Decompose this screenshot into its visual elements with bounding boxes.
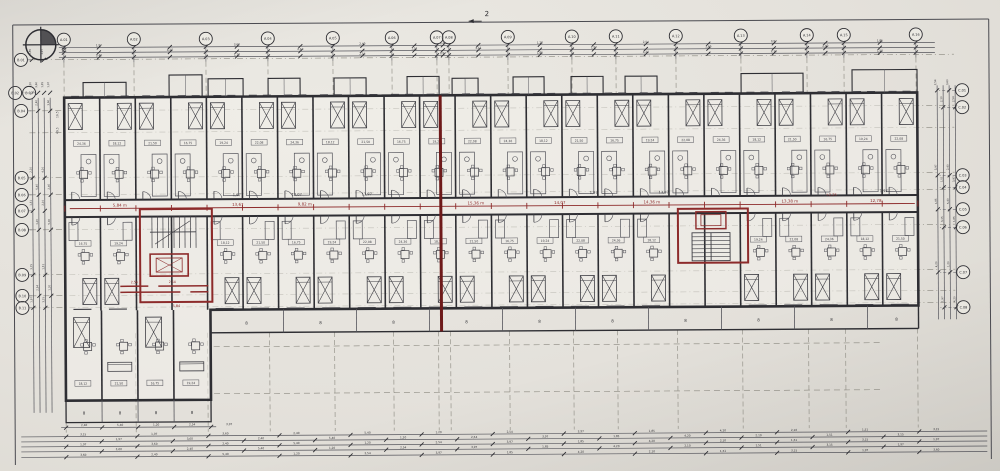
svg-text:3,15: 3,15 [862, 438, 868, 442]
svg-text:8: 8 [83, 411, 86, 416]
balcony [208, 79, 243, 97]
svg-text:A.10: A.10 [568, 35, 576, 39]
svg-text:14,07: 14,07 [554, 200, 566, 205]
svg-text:1,51: 1,51 [877, 48, 883, 52]
svg-text:2,54: 2,54 [400, 445, 406, 449]
svg-text:3,97: 3,97 [471, 445, 477, 449]
svg-text:22,08: 22,08 [363, 240, 372, 244]
svg-text:8: 8 [611, 318, 614, 323]
grid-bubble: A.08 [442, 31, 455, 44]
grid-bubble: B.04 [15, 104, 28, 117]
svg-text:5,40: 5,40 [96, 53, 102, 57]
svg-text:16,75: 16,75 [79, 242, 88, 246]
svg-text:3,15: 3,15 [897, 432, 903, 436]
left-dimension-chain: 1,854,202,101,513,151,973,602,405,401,20… [28, 48, 54, 412]
svg-text:B.06: B.06 [18, 193, 26, 197]
svg-text:19,24: 19,24 [646, 138, 655, 142]
svg-text:1,51: 1,51 [862, 428, 868, 432]
svg-text:21,50: 21,50 [896, 237, 905, 241]
svg-text:2,40: 2,40 [81, 423, 87, 427]
svg-text:3,60: 3,60 [234, 42, 240, 46]
grid-bubble: A.04 [261, 32, 274, 45]
svg-text:13,07: 13,07 [292, 193, 302, 197]
grid-bubble: B.06 [15, 188, 28, 201]
svg-text:C.03: C.03 [959, 173, 967, 177]
grid-bubble: C.01 [956, 84, 969, 97]
balcony [407, 76, 439, 95]
svg-text:2,40: 2,40 [187, 447, 193, 451]
svg-text:B.05: B.05 [18, 176, 26, 180]
svg-text:B.03: B.03 [25, 91, 33, 95]
grid-bubble: C.03 [956, 169, 969, 182]
grid-bubble: A.05 [326, 31, 339, 44]
grid-bubble: A.13 [734, 29, 747, 42]
grid-bubble: A.16 [909, 28, 922, 41]
balcony [741, 73, 803, 93]
svg-text:4,20: 4,20 [952, 296, 956, 302]
svg-text:2,40: 2,40 [47, 184, 51, 190]
svg-text:18,12: 18,12 [539, 139, 548, 143]
svg-text:C.08: C.08 [960, 305, 968, 309]
grid-bubble: A.01 [57, 33, 70, 46]
svg-text:3,97: 3,97 [771, 39, 777, 43]
svg-text:3,15: 3,15 [29, 264, 33, 270]
svg-text:3,15: 3,15 [475, 46, 481, 50]
svg-text:13,67: 13,67 [232, 202, 244, 207]
grid-bubble: B.02 [9, 86, 22, 99]
svg-text:5,40: 5,40 [293, 441, 299, 445]
svg-text:C.07: C.07 [959, 270, 967, 274]
svg-text:22,08: 22,08 [790, 237, 799, 241]
svg-text:5,40: 5,40 [47, 219, 51, 225]
svg-text:1,97: 1,97 [80, 442, 86, 446]
svg-text:1,20: 1,20 [400, 435, 406, 439]
svg-text:A.05: A.05 [329, 36, 337, 40]
svg-text:2,10: 2,10 [684, 444, 690, 448]
svg-text:4,20: 4,20 [934, 261, 938, 267]
svg-text:2,10: 2,10 [41, 200, 45, 206]
svg-text:1,97: 1,97 [591, 45, 597, 49]
svg-text:16,75: 16,75 [823, 137, 832, 141]
svg-text:A.01: A.01 [60, 38, 68, 42]
svg-text:A.07: A.07 [433, 36, 441, 40]
svg-text:2,40: 2,40 [946, 164, 950, 170]
svg-text:3,60: 3,60 [34, 82, 38, 88]
svg-text:2,10: 2,10 [755, 433, 761, 437]
svg-text:1,20: 1,20 [234, 52, 240, 56]
svg-text:8: 8 [538, 319, 541, 324]
svg-text:2,10: 2,10 [297, 47, 303, 51]
grid-bubble: B.10 [16, 289, 29, 302]
svg-text:B.10: B.10 [18, 294, 26, 298]
svg-text:18,12: 18,12 [647, 238, 656, 242]
svg-text:3,97: 3,97 [226, 422, 232, 426]
svg-text:1,97: 1,97 [933, 437, 939, 441]
svg-text:A.02: A.02 [130, 38, 138, 42]
svg-text:8: 8 [245, 321, 248, 326]
svg-text:B.02: B.02 [11, 91, 19, 95]
svg-text:8: 8 [392, 320, 395, 325]
balcony [452, 78, 478, 95]
svg-text:2,40: 2,40 [293, 431, 299, 435]
svg-text:21,50: 21,50 [148, 141, 157, 145]
svg-text:19,24: 19,24 [541, 239, 550, 243]
svg-text:19,24: 19,24 [859, 137, 868, 141]
svg-text:1,85: 1,85 [877, 38, 883, 42]
svg-text:2,10: 2,10 [791, 428, 797, 432]
grid-bubble: C.04 [956, 181, 969, 194]
svg-text:A.09: A.09 [504, 35, 512, 39]
svg-text:A.11: A.11 [612, 35, 620, 39]
svg-text:1,20: 1,20 [329, 446, 335, 450]
svg-text:18,12: 18,12 [79, 382, 88, 386]
svg-text:4,20: 4,20 [720, 428, 726, 432]
floor-plan-photo: 1,973,602,405,401,202,543,971,854,202,10… [0, 0, 1000, 471]
svg-text:24,36: 24,36 [290, 140, 299, 144]
svg-text:2,10: 2,10 [939, 96, 943, 102]
svg-text:8: 8 [465, 319, 468, 324]
balcony [625, 76, 657, 94]
svg-text:1,51: 1,51 [791, 438, 797, 442]
svg-text:B.07: B.07 [18, 209, 26, 213]
svg-text:18,12: 18,12 [861, 237, 870, 241]
svg-text:1,20: 1,20 [293, 452, 299, 456]
svg-text:A.12: A.12 [672, 34, 680, 38]
svg-text:3,60: 3,60 [151, 442, 157, 446]
grid-bubble: A.02 [127, 33, 140, 46]
grid-bubble: A.12 [669, 29, 682, 42]
svg-text:A.13: A.13 [737, 34, 745, 38]
svg-text:5,40: 5,40 [364, 431, 370, 435]
svg-text:1,97: 1,97 [46, 82, 50, 88]
svg-text:16,75: 16,75 [151, 381, 160, 385]
svg-text:2,54: 2,54 [933, 79, 937, 85]
svg-text:B.04: B.04 [17, 109, 25, 113]
svg-text:8: 8 [684, 318, 687, 323]
grid-bubble: C.07 [957, 266, 970, 279]
svg-text:21,50: 21,50 [115, 382, 124, 386]
plan-layers: 1,973,602,405,401,202,543,971,854,202,10… [8, 16, 991, 465]
svg-text:24,36: 24,36 [77, 142, 86, 146]
svg-text:2,10: 2,10 [720, 438, 726, 442]
svg-text:24,36: 24,36 [612, 238, 621, 242]
svg-text:3,15: 3,15 [940, 216, 944, 222]
grid-bubble: B.01 [14, 53, 27, 66]
grid-bubble: B.07 [15, 204, 28, 217]
svg-text:1,97: 1,97 [590, 191, 598, 195]
svg-text:A.03: A.03 [202, 37, 210, 41]
svg-text:4,20: 4,20 [684, 434, 690, 438]
svg-text:1,20: 1,20 [946, 261, 950, 267]
bottom-dimension-chain: 3,151,973,602,405,401,202,543,971,854,20… [21, 418, 987, 460]
svg-text:3,97: 3,97 [952, 176, 956, 182]
svg-text:14,36 m: 14,36 m [643, 199, 660, 204]
svg-text:2,54: 2,54 [359, 52, 365, 56]
svg-text:5,84: 5,84 [173, 304, 181, 308]
svg-text:19,24: 19,24 [219, 141, 228, 145]
svg-text:1,85: 1,85 [578, 439, 584, 443]
svg-text:4,20: 4,20 [649, 439, 655, 443]
grid-bubble: A.10 [565, 30, 578, 43]
svg-text:18,12: 18,12 [326, 140, 335, 144]
svg-text:A.08: A.08 [445, 36, 453, 40]
svg-text:1,85: 1,85 [613, 434, 619, 438]
svg-text:12,78: 12,78 [870, 198, 882, 203]
svg-text:1,97: 1,97 [880, 189, 888, 193]
svg-text:3,60: 3,60 [80, 453, 86, 457]
svg-text:3,60: 3,60 [933, 448, 939, 452]
svg-text:49,5: 49,5 [55, 127, 59, 134]
svg-text:2,10: 2,10 [771, 49, 777, 53]
grid-bubble: A.03 [199, 32, 212, 45]
svg-text:3,97: 3,97 [507, 440, 513, 444]
svg-text:1,51: 1,51 [29, 200, 33, 206]
svg-text:2,40: 2,40 [822, 44, 828, 48]
svg-text:18,12: 18,12 [113, 142, 122, 146]
svg-text:1,20: 1,20 [435, 430, 441, 434]
svg-text:5,40: 5,40 [35, 184, 39, 190]
svg-text:A.06: A.06 [388, 36, 396, 40]
svg-text:8: 8 [119, 410, 122, 415]
svg-text:24,36: 24,36 [504, 139, 513, 143]
svg-text:1,51: 1,51 [411, 46, 417, 50]
svg-text:3,60: 3,60 [46, 100, 50, 106]
svg-text:2,40: 2,40 [222, 441, 228, 445]
svg-text:8: 8 [191, 410, 194, 415]
grid-bubble: B.09 [16, 268, 29, 281]
svg-text:2,54: 2,54 [507, 430, 513, 434]
svg-text:9,82 m: 9,82 m [298, 201, 312, 206]
svg-text:1,51: 1,51 [41, 264, 45, 270]
svg-text:19,24: 19,24 [187, 381, 196, 385]
svg-text:8: 8 [895, 317, 898, 322]
svg-text:3,15: 3,15 [791, 448, 797, 452]
svg-text:8: 8 [319, 320, 322, 325]
svg-text:21,50: 21,50 [788, 137, 797, 141]
svg-text:B.09: B.09 [18, 273, 26, 277]
grid-bubble: C.08 [957, 301, 970, 314]
margin-notes: 16,549,5 [55, 111, 59, 134]
svg-text:24,36: 24,36 [717, 138, 726, 142]
svg-text:3,60: 3,60 [222, 431, 228, 435]
svg-text:13,97: 13,97 [362, 192, 372, 196]
svg-text:22,08: 22,08 [681, 138, 690, 142]
svg-text:4,20: 4,20 [41, 167, 45, 173]
svg-text:4,20: 4,20 [643, 50, 649, 54]
svg-text:4,20: 4,20 [613, 444, 619, 448]
svg-text:1,97: 1,97 [233, 193, 241, 197]
balcony [83, 82, 126, 97]
wing-balcony-row: 8888 [66, 400, 211, 423]
section-marker-label: 2 [485, 10, 490, 18]
svg-text:18,12: 18,12 [752, 138, 761, 142]
svg-text:2,10: 2,10 [649, 449, 655, 453]
right-dimension-chain: 2,543,971,854,202,101,513,151,973,602,40… [933, 79, 958, 319]
svg-text:1,20: 1,20 [153, 423, 159, 427]
grid-bubble: A.11 [609, 30, 622, 43]
svg-text:5,40: 5,40 [258, 446, 264, 450]
svg-text:1,85: 1,85 [537, 51, 543, 55]
balcony [268, 78, 300, 96]
svg-text:2,54: 2,54 [436, 440, 442, 444]
svg-text:1,20: 1,20 [35, 219, 39, 225]
svg-text:1,51: 1,51 [720, 449, 726, 453]
grid-bubble: B.08 [15, 223, 28, 236]
svg-text:C.04: C.04 [959, 185, 967, 189]
svg-text:4,20: 4,20 [167, 48, 173, 52]
svg-text:19,24: 19,24 [328, 240, 337, 244]
floorplan-drawing: 1,973,602,405,401,202,543,971,854,202,10… [0, 0, 1000, 471]
svg-text:1,20: 1,20 [47, 285, 51, 291]
svg-text:1,20: 1,20 [364, 441, 370, 445]
svg-text:2,40: 2,40 [359, 42, 365, 46]
grid-bubble: C.02 [956, 101, 969, 114]
svg-text:19,24: 19,24 [754, 238, 763, 242]
svg-text:3,97: 3,97 [440, 51, 446, 55]
svg-text:3,97: 3,97 [542, 435, 548, 439]
svg-text:2,10: 2,10 [29, 167, 33, 173]
svg-text:2,54: 2,54 [471, 435, 477, 439]
svg-text:3,60: 3,60 [116, 447, 122, 451]
svg-text:2,54: 2,54 [951, 96, 955, 102]
svg-text:1,97: 1,97 [862, 448, 868, 452]
grid-bubble: A.09 [501, 30, 514, 43]
svg-text:8: 8 [155, 410, 158, 415]
svg-text:A.14: A.14 [803, 33, 811, 37]
grid-bubble: C.06 [956, 221, 969, 234]
svg-text:2,54: 2,54 [189, 422, 195, 426]
balcony [334, 78, 366, 96]
svg-text:3,15: 3,15 [826, 443, 832, 447]
svg-text:24,36: 24,36 [825, 237, 834, 241]
balcony [571, 76, 603, 94]
svg-text:2,54: 2,54 [643, 40, 649, 44]
grid-bubble: A.15 [837, 28, 850, 41]
svg-text:2,40: 2,40 [151, 452, 157, 456]
svg-text:1,85: 1,85 [542, 445, 548, 449]
elevation-note: +2,25 [826, 193, 837, 197]
svg-text:1,51: 1,51 [755, 443, 761, 447]
svg-text:16,75: 16,75 [292, 240, 301, 244]
svg-text:1,97: 1,97 [116, 437, 122, 441]
svg-text:13,97: 13,97 [659, 190, 669, 194]
svg-text:4,20: 4,20 [578, 450, 584, 454]
svg-text:15,36 m: 15,36 m [467, 200, 484, 205]
grid-bubble: A.07 [430, 31, 443, 44]
svg-text:5,40: 5,40 [946, 198, 950, 204]
svg-text:22,08: 22,08 [255, 141, 264, 145]
svg-text:2,40: 2,40 [258, 436, 264, 440]
svg-text:B.11: B.11 [19, 306, 27, 310]
svg-text:A.16: A.16 [912, 33, 920, 37]
svg-text:C.02: C.02 [958, 105, 966, 109]
svg-text:1,51: 1,51 [826, 433, 832, 437]
svg-text:16,5: 16,5 [55, 111, 59, 118]
svg-text:16,75: 16,75 [397, 140, 406, 144]
svg-text:8: 8 [757, 317, 760, 322]
svg-text:18,12: 18,12 [221, 241, 230, 245]
svg-text:21,50: 21,50 [470, 239, 479, 243]
svg-text:21,50: 21,50 [256, 241, 265, 245]
svg-text:1,97: 1,97 [151, 432, 157, 436]
svg-text:21,50: 21,50 [361, 140, 370, 144]
svg-text:3,60: 3,60 [945, 79, 949, 85]
svg-text:22,08: 22,08 [468, 139, 477, 143]
svg-text:C.05: C.05 [959, 207, 967, 211]
balcony [169, 75, 202, 97]
svg-text:B.01: B.01 [17, 58, 25, 62]
svg-text:1,97: 1,97 [96, 43, 102, 47]
north-indicator [23, 27, 59, 63]
svg-text:5,84 m: 5,84 m [113, 203, 127, 208]
svg-text:3,97: 3,97 [934, 164, 938, 170]
svg-text:3,97: 3,97 [436, 451, 442, 455]
svg-text:1,51: 1,51 [940, 176, 944, 182]
svg-text:C.01: C.01 [958, 88, 966, 92]
svg-text:5,40: 5,40 [329, 436, 335, 440]
svg-text:22,08: 22,08 [576, 239, 585, 243]
svg-text:19,24: 19,24 [114, 242, 123, 246]
svg-text:1,85: 1,85 [934, 198, 938, 204]
svg-text:2,40: 2,40 [34, 100, 38, 106]
svg-text:3,60: 3,60 [187, 437, 193, 441]
balcony [852, 69, 917, 92]
svg-text:13,38 m: 13,38 m [781, 198, 798, 203]
svg-text:2,54: 2,54 [364, 451, 370, 455]
svg-text:16,75: 16,75 [505, 239, 514, 243]
svg-text:B.08: B.08 [18, 228, 26, 232]
svg-text:22,08: 22,08 [895, 137, 904, 141]
balcony [513, 77, 544, 95]
svg-text:1,85: 1,85 [40, 82, 44, 88]
svg-text:A.15: A.15 [840, 33, 848, 37]
grid-bubble: B.11 [16, 301, 29, 314]
svg-text:1,97: 1,97 [29, 297, 33, 303]
svg-text:3,15: 3,15 [933, 427, 939, 431]
svg-text:2,54: 2,54 [169, 280, 176, 284]
svg-text:16,75: 16,75 [610, 138, 619, 142]
svg-text:1,85: 1,85 [952, 216, 956, 222]
svg-text:3,15: 3,15 [80, 432, 86, 436]
svg-text:C.06: C.06 [959, 225, 967, 229]
svg-text:1,97: 1,97 [940, 296, 944, 302]
svg-text:1,20: 1,20 [537, 41, 543, 45]
svg-text:1,97: 1,97 [898, 442, 904, 446]
svg-text:2,54: 2,54 [35, 285, 39, 291]
svg-text:16,75: 16,75 [184, 141, 193, 145]
svg-text:2,54: 2,54 [131, 280, 138, 284]
grid-bubble: A.14 [800, 29, 813, 42]
svg-text:3,60: 3,60 [705, 45, 711, 49]
svg-text:24,36: 24,36 [399, 240, 408, 244]
svg-text:1,85: 1,85 [649, 429, 655, 433]
svg-text:1,85: 1,85 [507, 450, 513, 454]
bottom-balcony-strip: 8888888888 [210, 305, 918, 393]
grid-bubble: A.06 [385, 31, 398, 44]
svg-text:21,50: 21,50 [575, 139, 584, 143]
svg-text:3,97: 3,97 [578, 429, 584, 433]
svg-text:3,15: 3,15 [41, 297, 45, 303]
grid-bubble: B.05 [15, 171, 28, 184]
svg-text:5,40: 5,40 [222, 452, 228, 456]
svg-text:A.04: A.04 [264, 37, 272, 41]
svg-text:5,40: 5,40 [117, 423, 123, 427]
svg-text:8: 8 [830, 317, 833, 322]
north-label: N [60, 48, 67, 53]
grid-bubble: C.05 [956, 203, 969, 216]
